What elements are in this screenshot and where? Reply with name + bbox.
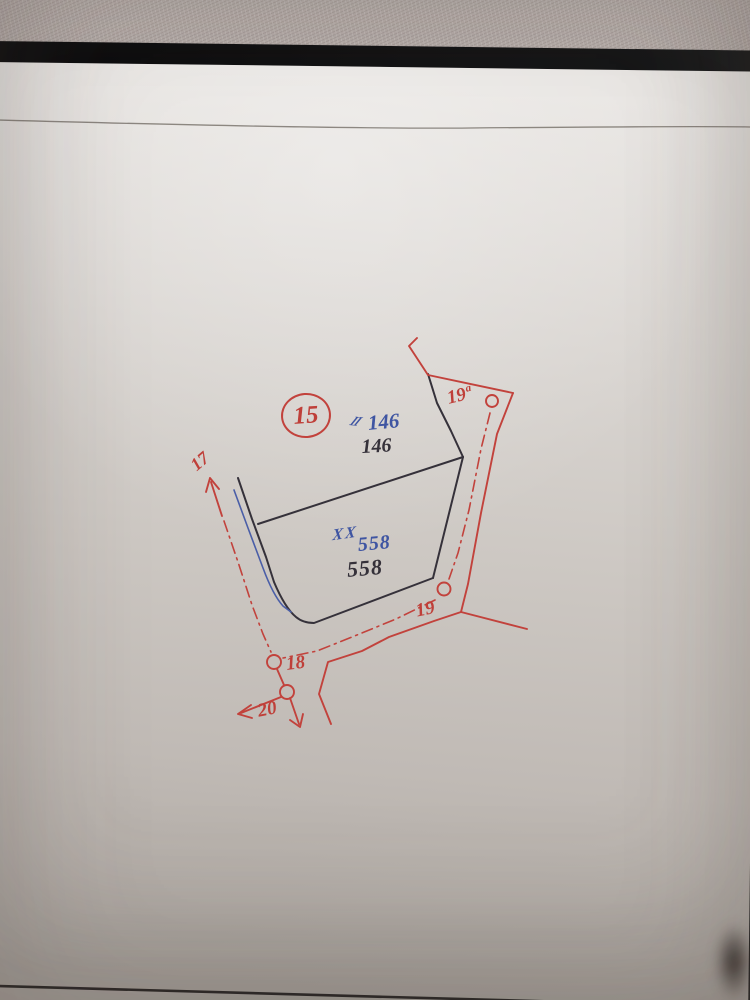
red-point-connector bbox=[277, 669, 284, 685]
point-label-18: 18 bbox=[285, 653, 306, 674]
red-boundary-right bbox=[461, 393, 513, 612]
sheet-number-label: 15 bbox=[293, 401, 320, 431]
parcel-number-blue-upper: 146 bbox=[367, 410, 400, 434]
black-boundary-right bbox=[433, 457, 463, 578]
parcel-number-black-upper: 146 bbox=[361, 435, 392, 457]
survey-point-circle-20 bbox=[280, 685, 294, 699]
survey-point-circle-19 bbox=[438, 583, 451, 596]
survey-point-circle-19a bbox=[486, 395, 498, 407]
axis-line-17-to-18 bbox=[224, 521, 271, 652]
survey-point-circle-18 bbox=[267, 655, 281, 669]
red-road-edge bbox=[319, 612, 527, 724]
black-boundary-left-bottom bbox=[238, 478, 433, 623]
point-label-19: 19 bbox=[414, 598, 437, 621]
photo-of-survey-sketch: 15 II 146 146 XX 558 558 19a 19 18 20 17 bbox=[0, 0, 750, 1000]
page-crease-line bbox=[0, 120, 750, 128]
point-label-20: 20 bbox=[256, 698, 278, 720]
black-divider-line bbox=[258, 457, 463, 524]
parcel-number-black-lower: 558 bbox=[346, 556, 384, 581]
bottom-page-edge-line bbox=[0, 986, 640, 1000]
parcel-number-blue-lower: 558 bbox=[357, 532, 392, 555]
sketch-drawing bbox=[0, 0, 750, 1000]
blue-parallel-boundary bbox=[234, 490, 291, 612]
